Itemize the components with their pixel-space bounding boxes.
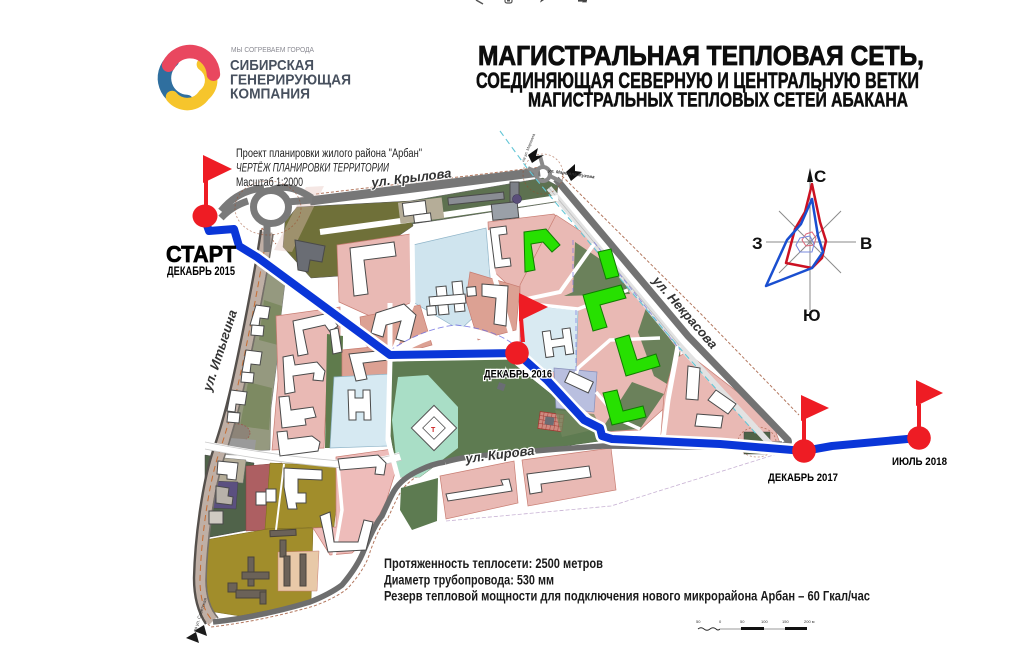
svg-text:200 м: 200 м [804,619,815,624]
svg-text:ДЕКАБРЬ 2016: ДЕКАБРЬ 2016 [484,369,552,381]
svg-text:Протяженность теплосети: 2500: Протяженность теплосети: 2500 метров [384,555,603,571]
svg-text:КОМПАНИЯ: КОМПАНИЯ [230,86,310,103]
svg-text:З: З [752,234,763,253]
svg-text:50: 50 [696,619,701,624]
svg-text:СТАРТ: СТАРТ [166,241,236,267]
svg-text:ИЮЛЬ 2018: ИЮЛЬ 2018 [892,456,947,468]
svg-text:Проект планировки жилого район: Проект планировки жилого района "Арбан" [236,148,422,160]
svg-text:150: 150 [782,619,789,624]
svg-text:Ю: Ю [803,306,821,325]
svg-text:Т: Т [431,427,436,434]
svg-text:В: В [860,234,872,253]
svg-text:МАГИСТРАЛЬНАЯ ТЕПЛОВАЯ СЕТЬ,: МАГИСТРАЛЬНАЯ ТЕПЛОВАЯ СЕТЬ, [478,40,924,71]
svg-text:МЫ СОГРЕВАЕМ ГОРОДА: МЫ СОГРЕВАЕМ ГОРОДА [231,45,314,54]
svg-text:С: С [814,167,826,186]
svg-text:МАГИСТРАЛЬНЫХ ТЕПЛОВЫХ СЕТЕЙ А: МАГИСТРАЛЬНЫХ ТЕПЛОВЫХ СЕТЕЙ АБАКАНА [528,88,908,112]
svg-text:ДЕКАБРЬ 2017: ДЕКАБРЬ 2017 [768,472,838,484]
svg-text:100: 100 [761,619,768,624]
svg-text:ДЕКАБРЬ 2015: ДЕКАБРЬ 2015 [167,266,235,278]
svg-text:Резерв тепловой мощности для п: Резерв тепловой мощности для подключения… [384,588,870,604]
svg-text:ЧЕРТЁЖ ПЛАНИРОВКИ ТЕРРИТОРИИ: ЧЕРТЁЖ ПЛАНИРОВКИ ТЕРРИТОРИИ [236,163,390,175]
svg-text:50: 50 [740,619,745,624]
svg-text:Диаметр трубопровода: 530 мм: Диаметр трубопровода: 530 мм [384,572,554,588]
svg-text:Масштаб 1:2000: Масштаб 1:2000 [236,177,303,189]
